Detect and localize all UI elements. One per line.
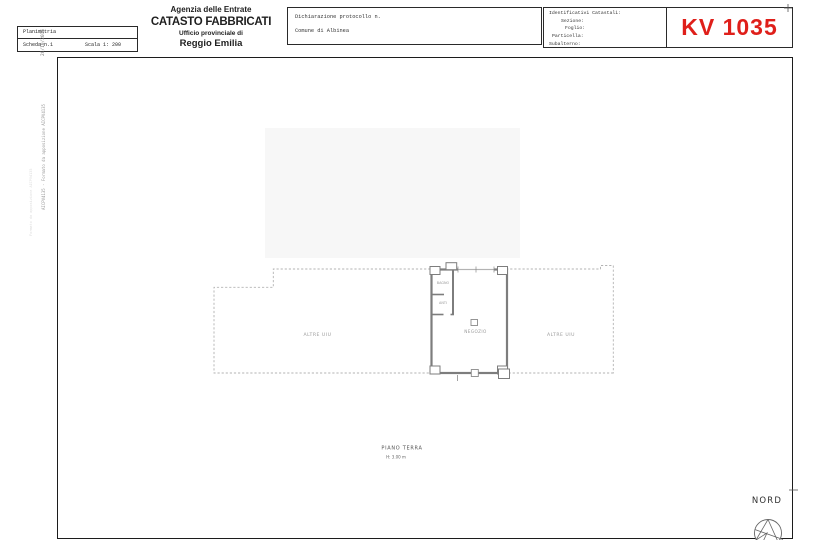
room-label-negozio: NEGOZIO — [464, 329, 487, 334]
pillar-square — [471, 320, 478, 326]
room-label-bagno: BAGNO — [437, 281, 450, 285]
room-label-right-area: ALTRE UIU — [547, 332, 575, 338]
pillar-square — [430, 366, 440, 374]
room-label-anti: ANTI — [439, 301, 447, 305]
floor-title: PIANO TERRA — [381, 446, 422, 452]
pillar-square — [498, 267, 508, 275]
door-jamb-square — [471, 370, 478, 377]
floor-height-label: H: 3.00 m — [386, 455, 406, 460]
scan-shade — [265, 128, 520, 258]
compass-rose-icon — [755, 520, 784, 540]
cadastral-document-page: Planimetria Scheda n.1 Scala 1: 200 Agen… — [0, 0, 818, 540]
nord-label: NORD — [752, 496, 782, 506]
plan-dashed-outline — [214, 266, 613, 374]
pillar-square — [430, 267, 440, 275]
room-label-left-area: ALTRE UIU — [303, 332, 331, 338]
top-pillar-protrusion — [446, 263, 457, 270]
bottom-right-protrusion — [499, 369, 510, 379]
registration-mark-top — [784, 4, 792, 12]
floor-plan-canvas: ALTRE UIU ALTRE UIU BAGNO ANTI NEGOZIO P… — [0, 0, 818, 540]
